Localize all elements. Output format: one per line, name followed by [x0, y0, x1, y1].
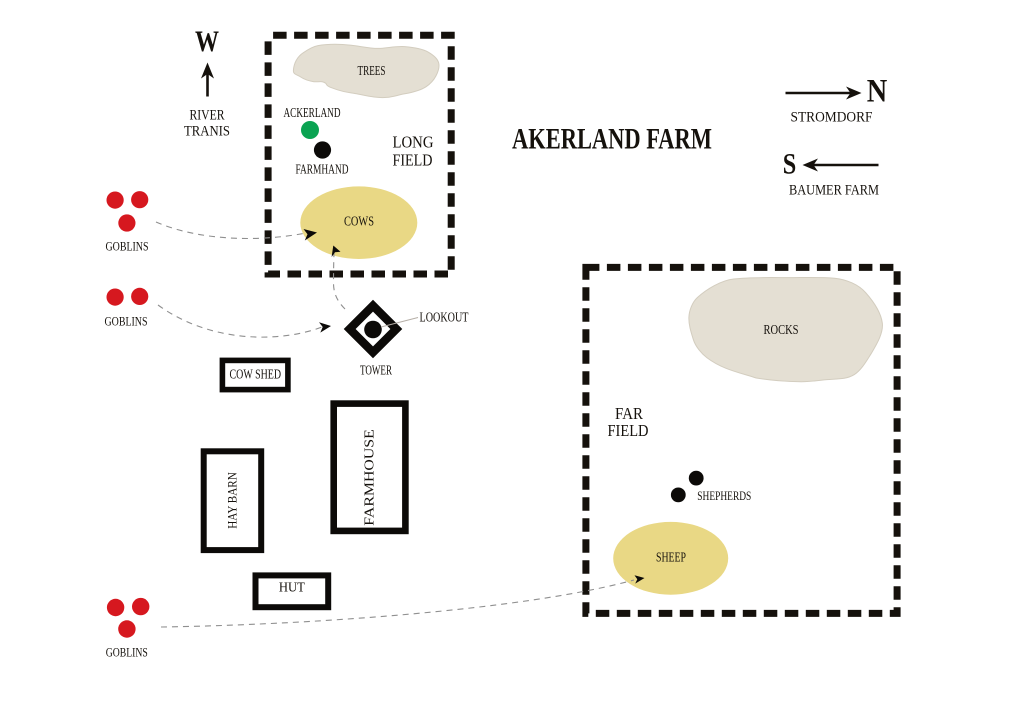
- svg-text:N: N: [867, 74, 888, 110]
- svg-text:TOWER: TOWER: [360, 363, 392, 378]
- svg-text:W: W: [195, 25, 219, 58]
- svg-text:AKERLAND FARM: AKERLAND FARM: [512, 123, 712, 156]
- svg-text:FARMHOUSE: FARMHOUSE: [362, 429, 377, 526]
- svg-text:GOBLINS: GOBLINS: [106, 239, 149, 254]
- svg-text:BAUMER FARM: BAUMER FARM: [789, 183, 879, 199]
- svg-text:LONG: LONG: [393, 133, 434, 152]
- svg-text:ROCKS: ROCKS: [764, 322, 799, 337]
- svg-text:SHEPHERDS: SHEPHERDS: [697, 488, 751, 503]
- svg-text:STROMDORF: STROMDORF: [791, 110, 873, 126]
- svg-text:S: S: [783, 148, 797, 181]
- svg-text:HAY BARN: HAY BARN: [225, 472, 240, 529]
- svg-text:LOOKOUT: LOOKOUT: [420, 310, 470, 325]
- svg-text:RIVER: RIVER: [190, 108, 225, 124]
- svg-text:SHEEP: SHEEP: [656, 550, 686, 565]
- svg-text:HUT: HUT: [279, 580, 306, 595]
- svg-text:COW SHED: COW SHED: [230, 367, 282, 382]
- svg-text:GOBLINS: GOBLINS: [106, 645, 148, 660]
- svg-text:GOBLINS: GOBLINS: [105, 314, 148, 329]
- svg-text:FIELD: FIELD: [393, 151, 433, 170]
- svg-text:ACKERLAND: ACKERLAND: [284, 105, 341, 120]
- svg-text:TREES: TREES: [358, 63, 386, 78]
- svg-text:TRANIS: TRANIS: [184, 124, 230, 140]
- svg-text:FARMHAND: FARMHAND: [296, 162, 349, 177]
- svg-text:FIELD: FIELD: [608, 421, 649, 440]
- svg-text:COWS: COWS: [344, 214, 374, 229]
